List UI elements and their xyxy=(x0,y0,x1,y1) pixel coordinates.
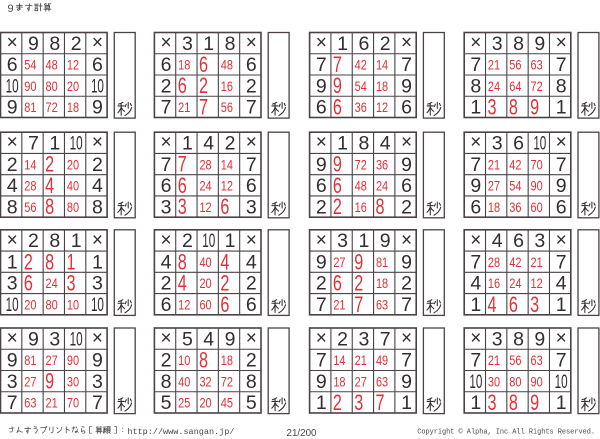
svg-text:27: 27 xyxy=(333,254,345,270)
svg-text:3: 3 xyxy=(66,271,75,296)
svg-text:18: 18 xyxy=(67,99,79,115)
svg-text:10: 10 xyxy=(533,133,546,155)
svg-text:6: 6 xyxy=(556,196,567,218)
svg-text:2: 2 xyxy=(380,33,391,55)
svg-text:2: 2 xyxy=(333,390,342,415)
svg-text:6: 6 xyxy=(178,73,187,98)
svg-text:2: 2 xyxy=(92,154,103,176)
svg-text:4: 4 xyxy=(203,133,214,155)
svg-text:18: 18 xyxy=(333,373,345,389)
svg-text:7: 7 xyxy=(316,294,327,316)
svg-text:4: 4 xyxy=(556,273,567,295)
svg-text:27: 27 xyxy=(46,352,58,368)
svg-text:28: 28 xyxy=(24,178,36,194)
svg-text:6: 6 xyxy=(470,196,481,218)
svg-text:56: 56 xyxy=(24,199,36,215)
svg-text:2: 2 xyxy=(161,350,172,372)
svg-text:10: 10 xyxy=(70,133,83,155)
svg-text:2: 2 xyxy=(246,75,257,97)
svg-text:1: 1 xyxy=(556,392,567,414)
svg-text:80: 80 xyxy=(509,373,521,389)
svg-text:20: 20 xyxy=(199,395,211,411)
svg-text:24: 24 xyxy=(509,275,521,291)
svg-text:×: × xyxy=(316,328,327,349)
svg-text:×: × xyxy=(7,328,18,349)
svg-text:20: 20 xyxy=(67,156,79,172)
svg-text:80: 80 xyxy=(46,78,58,94)
svg-text:3: 3 xyxy=(492,328,503,350)
svg-text:20: 20 xyxy=(199,275,211,291)
svg-text:×: × xyxy=(161,230,172,251)
svg-text:5: 5 xyxy=(246,392,257,414)
svg-text:5: 5 xyxy=(182,328,193,350)
svg-text:10: 10 xyxy=(91,294,104,316)
svg-text:9: 9 xyxy=(534,33,545,55)
svg-text:2: 2 xyxy=(225,133,236,155)
svg-text:20: 20 xyxy=(24,296,36,312)
svg-text:9: 9 xyxy=(8,3,14,15)
svg-text:36: 36 xyxy=(509,199,521,215)
svg-text:6: 6 xyxy=(316,175,327,197)
svg-text:6: 6 xyxy=(220,292,229,317)
svg-text:40: 40 xyxy=(67,178,79,194)
svg-text:7: 7 xyxy=(354,292,363,317)
svg-text:3: 3 xyxy=(161,196,172,218)
svg-text:6: 6 xyxy=(92,54,103,76)
svg-text:10: 10 xyxy=(6,294,19,316)
svg-text:80: 80 xyxy=(67,199,79,215)
svg-text:3: 3 xyxy=(492,133,503,155)
svg-text:3: 3 xyxy=(354,390,363,415)
svg-text:2: 2 xyxy=(316,273,327,295)
svg-text:60: 60 xyxy=(531,199,543,215)
svg-text:8: 8 xyxy=(161,371,172,393)
svg-text:54: 54 xyxy=(24,57,36,73)
svg-text:25: 25 xyxy=(178,395,190,411)
svg-text:8: 8 xyxy=(7,196,18,218)
svg-text:5: 5 xyxy=(161,392,172,414)
svg-text:×: × xyxy=(316,132,327,153)
svg-text:40: 40 xyxy=(178,373,190,389)
svg-text:×: × xyxy=(556,328,567,349)
svg-text:×: × xyxy=(161,33,172,54)
svg-text:×: × xyxy=(7,230,18,251)
svg-text:6: 6 xyxy=(333,94,342,119)
svg-text:63: 63 xyxy=(24,395,36,411)
svg-text:9: 9 xyxy=(92,97,103,119)
svg-text:6: 6 xyxy=(333,271,342,296)
svg-text:14: 14 xyxy=(333,352,345,368)
svg-text:24: 24 xyxy=(488,78,500,94)
svg-text:9: 9 xyxy=(380,230,391,252)
svg-text:3: 3 xyxy=(92,371,103,393)
svg-text:60: 60 xyxy=(199,296,211,312)
svg-text:3: 3 xyxy=(49,328,60,350)
svg-text:12: 12 xyxy=(199,199,211,215)
svg-text:3: 3 xyxy=(7,371,18,393)
svg-text:63: 63 xyxy=(531,352,543,368)
svg-text:7: 7 xyxy=(380,328,391,350)
svg-text:42: 42 xyxy=(509,156,521,172)
svg-text:64: 64 xyxy=(509,78,521,94)
svg-text:2: 2 xyxy=(401,273,412,295)
svg-text:81: 81 xyxy=(24,99,36,115)
svg-text:6: 6 xyxy=(246,54,257,76)
svg-text:81: 81 xyxy=(376,254,388,270)
svg-text:56: 56 xyxy=(221,99,233,115)
svg-text:6: 6 xyxy=(161,54,172,76)
svg-text:42: 42 xyxy=(355,57,367,73)
svg-text:48: 48 xyxy=(355,178,367,194)
svg-text:30: 30 xyxy=(67,373,79,389)
svg-text:14: 14 xyxy=(24,156,36,172)
svg-text:1: 1 xyxy=(401,392,412,414)
svg-text:7: 7 xyxy=(556,54,567,76)
svg-text:8: 8 xyxy=(45,249,54,274)
svg-text:8: 8 xyxy=(199,347,208,372)
svg-text:18: 18 xyxy=(178,57,190,73)
svg-text:21: 21 xyxy=(355,352,367,368)
svg-text:7: 7 xyxy=(199,94,208,119)
svg-text:4: 4 xyxy=(161,251,172,273)
svg-text:8: 8 xyxy=(225,33,236,55)
svg-text:9: 9 xyxy=(7,97,18,119)
svg-text:72: 72 xyxy=(221,373,233,389)
svg-text:63: 63 xyxy=(376,296,388,312)
svg-text:3: 3 xyxy=(488,94,497,119)
svg-text:8: 8 xyxy=(92,196,103,218)
svg-text:40: 40 xyxy=(199,254,211,270)
svg-text:21: 21 xyxy=(488,57,500,73)
svg-text:×: × xyxy=(470,328,481,349)
svg-text:×: × xyxy=(556,33,567,54)
svg-text:9: 9 xyxy=(316,251,327,273)
svg-text:28: 28 xyxy=(199,156,211,172)
svg-text:8: 8 xyxy=(49,33,60,55)
svg-text:90: 90 xyxy=(24,78,36,94)
svg-text:56: 56 xyxy=(509,352,521,368)
svg-text:3: 3 xyxy=(530,292,539,317)
svg-text:70: 70 xyxy=(67,395,79,411)
svg-text:3: 3 xyxy=(7,273,18,295)
svg-text:16: 16 xyxy=(221,78,233,94)
svg-text:×: × xyxy=(401,230,412,251)
svg-text:6: 6 xyxy=(220,194,229,219)
svg-text:80: 80 xyxy=(46,296,58,312)
svg-text:3: 3 xyxy=(534,230,545,252)
svg-text:6: 6 xyxy=(246,175,257,197)
svg-text:×: × xyxy=(246,132,257,153)
svg-text:6: 6 xyxy=(513,133,524,155)
svg-text:9: 9 xyxy=(530,390,539,415)
svg-text:9: 9 xyxy=(225,328,236,350)
svg-text:10: 10 xyxy=(91,75,104,97)
svg-text:×: × xyxy=(92,132,103,153)
svg-text:12: 12 xyxy=(221,178,233,194)
svg-text:6: 6 xyxy=(24,271,33,296)
svg-text:×: × xyxy=(92,33,103,54)
svg-text:×: × xyxy=(246,328,257,349)
svg-text:2: 2 xyxy=(161,273,172,295)
svg-text:4: 4 xyxy=(92,175,103,197)
svg-text:10: 10 xyxy=(6,75,19,97)
svg-text:9: 9 xyxy=(556,175,567,197)
svg-text:3: 3 xyxy=(337,230,348,252)
svg-text:3: 3 xyxy=(246,196,257,218)
svg-text:7: 7 xyxy=(556,251,567,273)
svg-text:54: 54 xyxy=(509,178,521,194)
svg-text:10: 10 xyxy=(555,371,568,393)
svg-text:21: 21 xyxy=(531,254,543,270)
svg-text:9: 9 xyxy=(45,369,54,394)
svg-text:7: 7 xyxy=(7,392,18,414)
svg-text:http://www.sangan.jp/: http://www.sangan.jp/ xyxy=(127,427,234,437)
svg-text:21: 21 xyxy=(488,352,500,368)
svg-text:2: 2 xyxy=(7,154,18,176)
svg-text:4: 4 xyxy=(488,292,497,317)
svg-text:9: 9 xyxy=(470,175,481,197)
svg-text:2: 2 xyxy=(316,196,327,218)
svg-text:6: 6 xyxy=(401,175,412,197)
svg-text:7: 7 xyxy=(161,154,172,176)
svg-text:7: 7 xyxy=(470,350,481,372)
svg-text:×: × xyxy=(470,33,481,54)
svg-text:63: 63 xyxy=(531,57,543,73)
svg-text:10: 10 xyxy=(67,296,79,312)
svg-text:1: 1 xyxy=(92,251,103,273)
svg-text:Copyright © Alpha, Inc All Rig: Copyright © Alpha, Inc All Rights Reserv… xyxy=(417,428,595,437)
svg-text:×: × xyxy=(401,132,412,153)
svg-text:7: 7 xyxy=(316,350,327,372)
svg-text:4: 4 xyxy=(492,230,503,252)
svg-text:14: 14 xyxy=(376,57,388,73)
svg-text:7: 7 xyxy=(246,97,257,119)
svg-text:3: 3 xyxy=(358,328,369,350)
svg-text:8: 8 xyxy=(358,133,369,155)
svg-text:×: × xyxy=(161,328,172,349)
svg-text:4: 4 xyxy=(178,271,187,296)
svg-text:8: 8 xyxy=(470,75,481,97)
svg-text:16: 16 xyxy=(355,199,367,215)
svg-text:1: 1 xyxy=(316,392,327,414)
svg-text:4: 4 xyxy=(7,175,18,197)
svg-text:10: 10 xyxy=(202,230,215,252)
svg-text:18: 18 xyxy=(221,352,233,368)
svg-text:×: × xyxy=(316,230,327,251)
svg-text:14: 14 xyxy=(221,156,233,172)
svg-text:12: 12 xyxy=(178,296,190,312)
svg-text:20: 20 xyxy=(67,78,79,94)
svg-text:×: × xyxy=(401,33,412,54)
svg-text:1: 1 xyxy=(470,392,481,414)
svg-text:10: 10 xyxy=(469,371,482,393)
svg-text:4: 4 xyxy=(380,133,391,155)
svg-text:6: 6 xyxy=(246,294,257,316)
svg-text:7: 7 xyxy=(401,54,412,76)
svg-text:×: × xyxy=(7,132,18,153)
svg-text:6: 6 xyxy=(401,97,412,119)
svg-text:8: 8 xyxy=(513,328,524,350)
svg-text:45: 45 xyxy=(221,395,233,411)
svg-text:9: 9 xyxy=(28,328,39,350)
svg-text:27: 27 xyxy=(24,373,36,389)
svg-text:7: 7 xyxy=(470,251,481,273)
svg-text:7: 7 xyxy=(28,133,39,155)
svg-text:1: 1 xyxy=(556,294,567,316)
svg-text:6: 6 xyxy=(7,54,18,76)
svg-text:9: 9 xyxy=(316,75,327,97)
svg-text:42: 42 xyxy=(509,254,521,270)
svg-text:36: 36 xyxy=(376,156,388,172)
svg-text:7: 7 xyxy=(316,54,327,76)
svg-text:12: 12 xyxy=(67,57,79,73)
svg-text:2: 2 xyxy=(333,194,342,219)
svg-text:×: × xyxy=(92,328,103,349)
svg-text:9: 9 xyxy=(92,350,103,372)
svg-text:9: 9 xyxy=(316,154,327,176)
svg-text:21: 21 xyxy=(488,156,500,172)
svg-text:90: 90 xyxy=(531,178,543,194)
svg-text:2: 2 xyxy=(246,350,257,372)
svg-text:8: 8 xyxy=(513,33,524,55)
svg-text:6: 6 xyxy=(509,292,518,317)
svg-text:49: 49 xyxy=(376,352,388,368)
svg-text:1: 1 xyxy=(470,294,481,316)
svg-text:30: 30 xyxy=(488,373,500,389)
svg-text:36: 36 xyxy=(355,99,367,115)
svg-text:8: 8 xyxy=(376,194,385,219)
svg-text:12: 12 xyxy=(531,275,543,291)
svg-text:9: 9 xyxy=(530,94,539,119)
svg-text:9: 9 xyxy=(401,75,412,97)
svg-text:2: 2 xyxy=(71,33,82,55)
svg-text:×: × xyxy=(556,230,567,251)
svg-text:21: 21 xyxy=(333,296,345,312)
svg-text:90: 90 xyxy=(67,352,79,368)
svg-text:7: 7 xyxy=(161,97,172,119)
svg-text:16: 16 xyxy=(488,275,500,291)
svg-text:7: 7 xyxy=(246,154,257,176)
svg-text:×: × xyxy=(92,230,103,251)
svg-text:12: 12 xyxy=(376,99,388,115)
svg-text:32: 32 xyxy=(199,373,211,389)
svg-text:72: 72 xyxy=(355,156,367,172)
svg-text:7: 7 xyxy=(556,350,567,372)
svg-text:21: 21 xyxy=(178,99,190,115)
svg-text:21/200: 21/200 xyxy=(287,428,318,439)
svg-text:×: × xyxy=(246,33,257,54)
svg-text:3: 3 xyxy=(92,273,103,295)
svg-text:9: 9 xyxy=(316,371,327,393)
svg-text:8: 8 xyxy=(556,75,567,97)
svg-text:×: × xyxy=(316,33,327,54)
svg-text:3: 3 xyxy=(182,33,193,55)
svg-text:24: 24 xyxy=(199,178,211,194)
svg-text:81: 81 xyxy=(24,352,36,368)
svg-text:2: 2 xyxy=(337,328,348,350)
svg-text:28: 28 xyxy=(488,254,500,270)
svg-text:90: 90 xyxy=(531,373,543,389)
svg-text:7: 7 xyxy=(401,294,412,316)
svg-text:8: 8 xyxy=(45,194,54,219)
svg-text:8: 8 xyxy=(509,390,518,415)
svg-text:9: 9 xyxy=(534,328,545,350)
svg-text:9: 9 xyxy=(28,33,39,55)
svg-text:7: 7 xyxy=(470,154,481,176)
svg-text:21: 21 xyxy=(46,395,58,411)
svg-text:1: 1 xyxy=(470,97,481,119)
svg-text:2: 2 xyxy=(401,196,412,218)
svg-text:18: 18 xyxy=(376,78,388,94)
svg-text:9: 9 xyxy=(401,251,412,273)
svg-text:72: 72 xyxy=(46,99,58,115)
svg-text:×: × xyxy=(470,132,481,153)
svg-text:2: 2 xyxy=(246,273,257,295)
svg-text:3: 3 xyxy=(492,33,503,55)
svg-text:7: 7 xyxy=(401,350,412,372)
svg-text:4: 4 xyxy=(470,273,481,295)
svg-text:24: 24 xyxy=(376,178,388,194)
svg-text:3: 3 xyxy=(178,194,187,219)
svg-text:×: × xyxy=(470,230,481,251)
svg-text:7: 7 xyxy=(376,390,385,415)
svg-text:9: 9 xyxy=(7,350,18,372)
svg-text:56: 56 xyxy=(509,57,521,73)
svg-text:4: 4 xyxy=(246,251,257,273)
svg-text:48: 48 xyxy=(221,57,233,73)
svg-text:8: 8 xyxy=(246,371,257,393)
svg-text:7: 7 xyxy=(556,154,567,176)
svg-text:×: × xyxy=(556,132,567,153)
svg-text:18: 18 xyxy=(376,275,388,291)
svg-text:×: × xyxy=(161,132,172,153)
svg-text:54: 54 xyxy=(355,78,367,94)
svg-text:9: 9 xyxy=(401,154,412,176)
svg-text:48: 48 xyxy=(46,57,58,73)
svg-text:3: 3 xyxy=(488,390,497,415)
svg-text:6: 6 xyxy=(358,33,369,55)
svg-text:9: 9 xyxy=(401,371,412,393)
svg-text:7: 7 xyxy=(92,392,103,414)
svg-text:1: 1 xyxy=(7,251,18,273)
svg-text:18: 18 xyxy=(488,199,500,215)
svg-text:6: 6 xyxy=(161,294,172,316)
svg-text:10: 10 xyxy=(70,328,83,350)
svg-text:63: 63 xyxy=(376,373,388,389)
svg-text:27: 27 xyxy=(355,373,367,389)
svg-text:27: 27 xyxy=(488,178,500,194)
svg-text:×: × xyxy=(401,328,412,349)
svg-text:72: 72 xyxy=(531,78,543,94)
svg-text:×: × xyxy=(7,33,18,54)
svg-text:6: 6 xyxy=(513,230,524,252)
svg-text:7: 7 xyxy=(470,54,481,76)
svg-text:6: 6 xyxy=(316,97,327,119)
svg-text:8: 8 xyxy=(509,94,518,119)
svg-text:70: 70 xyxy=(531,156,543,172)
svg-text:1: 1 xyxy=(556,97,567,119)
svg-text:×: × xyxy=(246,230,257,251)
svg-text:24: 24 xyxy=(46,275,58,291)
svg-text:2: 2 xyxy=(161,75,172,97)
svg-text:6: 6 xyxy=(161,175,172,197)
svg-text:10: 10 xyxy=(178,352,190,368)
